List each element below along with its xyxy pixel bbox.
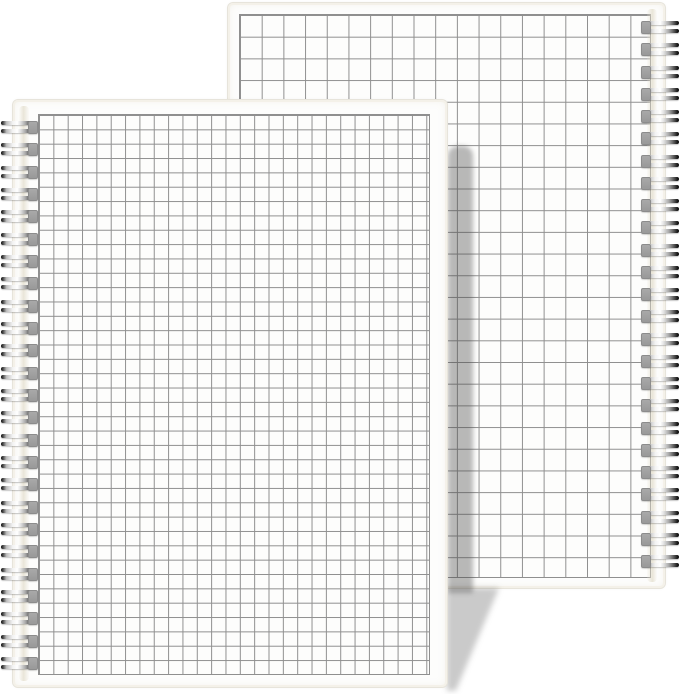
- binding-ring: [1, 254, 38, 270]
- binding-ring: [1, 500, 38, 516]
- binding-ring: [641, 65, 679, 81]
- punch-hole: [28, 635, 38, 648]
- punch-hole: [28, 121, 38, 134]
- punch-hole: [28, 210, 38, 223]
- punch-hole: [28, 143, 38, 156]
- binding-ring: [1, 567, 38, 583]
- punch-hole: [641, 132, 651, 145]
- punch-hole: [641, 444, 651, 457]
- binding-ring: [1, 321, 38, 337]
- binding-ring: [641, 309, 679, 325]
- punch-hole: [28, 434, 38, 447]
- punch-hole: [28, 501, 38, 514]
- punch-hole: [28, 344, 38, 357]
- binding-ring: [1, 656, 38, 672]
- binding-ring: [641, 131, 679, 147]
- binding-ring: [641, 198, 679, 214]
- product-photo: [0, 0, 679, 694]
- punch-hole: [641, 66, 651, 79]
- punch-hole: [641, 199, 651, 212]
- binding-ring: [1, 410, 38, 426]
- binding-ring: [1, 299, 38, 315]
- binding-ring: [641, 42, 679, 58]
- binding-ring: [1, 187, 38, 203]
- cast-shadow-floor: [436, 580, 526, 694]
- binding-ring: [641, 398, 679, 414]
- punch-hole: [28, 612, 38, 625]
- binding-ring: [1, 522, 38, 538]
- punch-hole: [641, 377, 651, 390]
- punch-hole: [641, 88, 651, 101]
- binding-ring: [641, 265, 679, 281]
- punch-hole: [28, 255, 38, 268]
- punch-hole: [28, 568, 38, 581]
- binding-ring: [641, 154, 679, 170]
- binding-ring: [641, 443, 679, 459]
- binding-ring: [1, 209, 38, 225]
- punch-hole: [28, 478, 38, 491]
- binding-ring: [641, 554, 679, 570]
- punch-hole: [641, 177, 651, 190]
- binding-ring: [1, 366, 38, 382]
- binding-ring: [641, 465, 679, 481]
- binding-ring: [641, 20, 679, 36]
- binding-ring: [641, 109, 679, 125]
- punch-hole: [641, 110, 651, 123]
- punch-hole: [641, 466, 651, 479]
- punch-hole: [28, 523, 38, 536]
- punch-hole: [641, 288, 651, 301]
- punch-hole: [641, 266, 651, 279]
- punch-hole: [28, 411, 38, 424]
- binding-ring: [641, 243, 679, 259]
- grid-cover: [38, 114, 430, 675]
- binding-ring: [641, 354, 679, 370]
- binding-ring: [641, 332, 679, 348]
- punch-hole: [641, 399, 651, 412]
- binding-ring: [641, 220, 679, 236]
- punch-hole: [641, 221, 651, 234]
- binding-ring: [641, 532, 679, 548]
- punch-hole: [28, 590, 38, 603]
- binding-ring: [1, 433, 38, 449]
- binding-ring: [1, 165, 38, 181]
- binding-ring: [641, 487, 679, 503]
- binding-ring: [1, 634, 38, 650]
- binding-ring: [641, 421, 679, 437]
- binding-ring: [1, 142, 38, 158]
- punch-hole: [28, 233, 38, 246]
- binding-ring: [1, 477, 38, 493]
- punch-hole: [28, 300, 38, 313]
- front-notebook: [13, 100, 447, 687]
- punch-hole: [641, 21, 651, 34]
- binding-ring: [1, 276, 38, 292]
- punch-hole: [641, 488, 651, 501]
- punch-hole: [28, 545, 38, 558]
- binding-ring: [1, 589, 38, 605]
- punch-hole: [28, 657, 38, 670]
- punch-hole: [641, 555, 651, 568]
- punch-hole: [641, 422, 651, 435]
- punch-hole: [28, 188, 38, 201]
- punch-hole: [28, 389, 38, 402]
- binding-ring: [641, 287, 679, 303]
- punch-hole: [641, 310, 651, 323]
- binding-ring: [641, 176, 679, 192]
- binding-ring: [1, 544, 38, 560]
- punch-hole: [28, 166, 38, 179]
- binding-ring: [641, 87, 679, 103]
- punch-hole: [641, 333, 651, 346]
- binding-ring: [1, 388, 38, 404]
- cast-shadow-floor-shape: [436, 580, 526, 694]
- punch-hole: [28, 322, 38, 335]
- punch-hole: [641, 355, 651, 368]
- punch-hole: [641, 43, 651, 56]
- punch-hole: [28, 367, 38, 380]
- binding-ring: [1, 343, 38, 359]
- binding-ring: [641, 510, 679, 526]
- binding-ring: [1, 611, 38, 627]
- binding-ring: [1, 455, 38, 471]
- binding-ring: [1, 232, 38, 248]
- punch-hole: [28, 456, 38, 469]
- binding-ring: [1, 120, 38, 136]
- punch-hole: [641, 244, 651, 257]
- punch-hole: [641, 533, 651, 546]
- punch-hole: [641, 511, 651, 524]
- binding-ring: [641, 376, 679, 392]
- punch-hole: [641, 155, 651, 168]
- punch-hole: [28, 277, 38, 290]
- cast-shadow-strip: [448, 146, 473, 593]
